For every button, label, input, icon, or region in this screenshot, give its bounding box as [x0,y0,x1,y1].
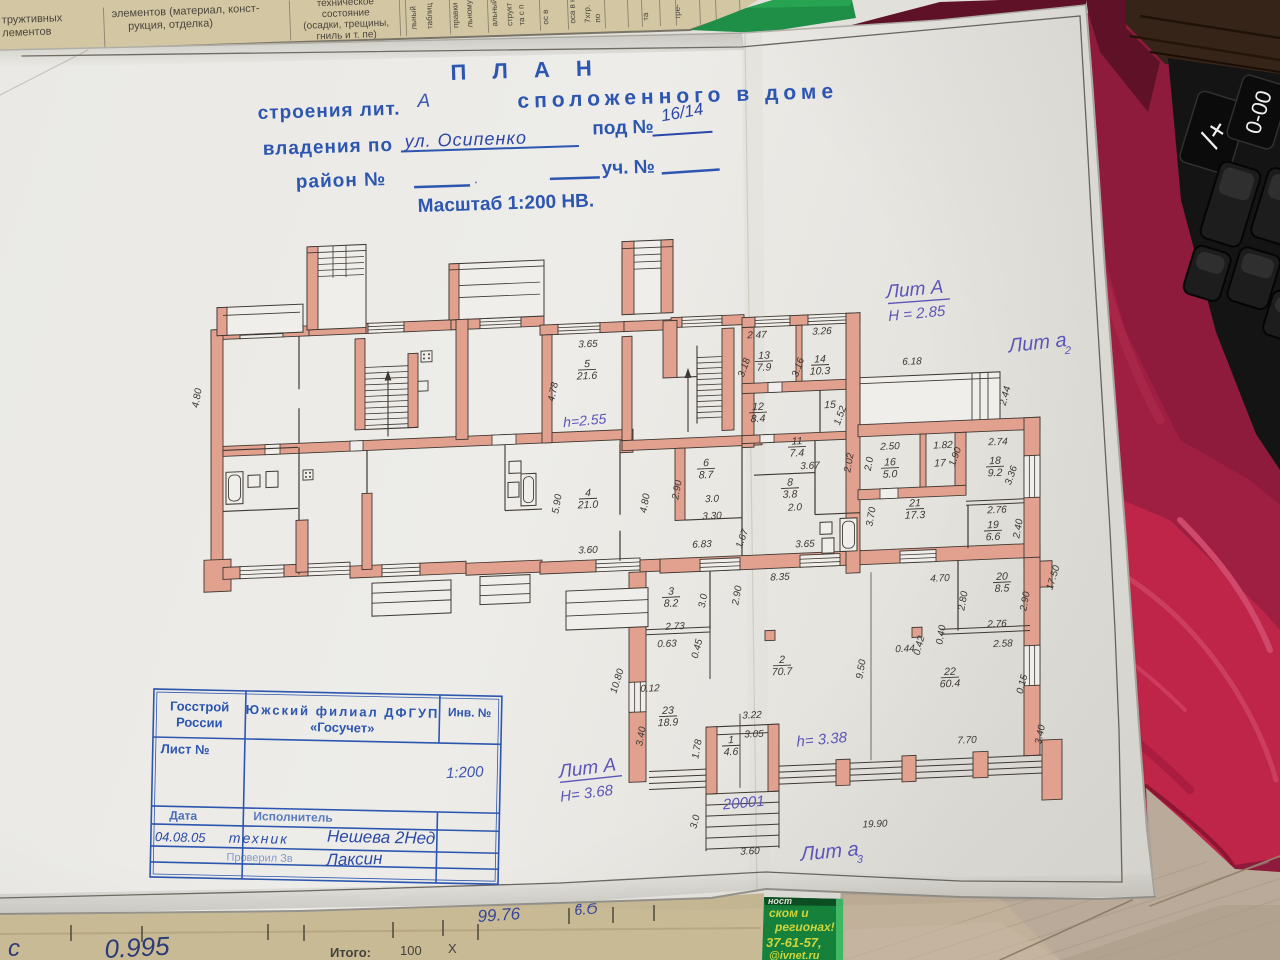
svg-text:12: 12 [752,401,764,413]
svg-text:18.9: 18.9 [658,716,679,729]
svg-text:район №: район № [296,169,387,193]
svg-text:под №: под № [592,117,654,140]
svg-text:А: А [416,91,430,112]
svg-text:льному: льному [464,0,474,28]
svg-text:1.82: 1.82 [933,440,953,452]
svg-text:13: 13 [758,349,770,361]
svg-text:21.6: 21.6 [576,370,598,383]
svg-text:2.76: 2.76 [986,619,1007,631]
svg-text:8.2: 8.2 [664,597,679,610]
svg-text:7хгр.: 7хгр. [583,5,593,23]
svg-text:21.0: 21.0 [577,499,599,512]
svg-text:14: 14 [814,353,826,365]
svg-text:2: 2 [1064,345,1071,357]
svg-text:альный: альный [489,0,499,27]
svg-text:Инв. №: Инв. № [448,705,492,720]
svg-text:X: X [448,941,457,956]
svg-text:2.58: 2.58 [992,638,1013,650]
svg-text:Дата: Дата [169,808,197,823]
svg-text:2.73: 2.73 [664,621,685,633]
svg-text:19.90: 19.90 [862,819,887,831]
svg-text:Лаксин: Лаксин [325,849,383,870]
svg-text:22: 22 [943,666,956,679]
svg-text:3.8: 3.8 [783,488,798,501]
svg-text:техник: техник [229,830,289,847]
svg-text:04.08.05: 04.08.05 [155,829,207,845]
svg-text:0.12: 0.12 [640,683,660,695]
svg-text:та с п: та с п [517,5,527,26]
svg-text:5.0: 5.0 [883,468,898,481]
svg-text:16: 16 [884,456,896,468]
svg-text:тружтивных: тружтивных [2,12,63,26]
svg-text:21: 21 [908,497,921,510]
svg-text:8.35: 8.35 [770,572,790,584]
svg-text:0.995: 0.995 [104,931,171,960]
svg-text:3.60: 3.60 [740,846,760,858]
svg-text:ос в: ос в [541,9,551,24]
svg-text:3.05: 3.05 [744,729,764,741]
svg-text:9.2: 9.2 [988,467,1003,480]
svg-text:4.70: 4.70 [930,573,950,585]
svg-text:6: 6 [703,457,709,469]
svg-text:7.9: 7.9 [757,361,772,374]
svg-text:100: 100 [400,943,422,958]
svg-text:1: 1 [728,734,734,746]
svg-text:3.65: 3.65 [795,539,815,551]
svg-text:8.7: 8.7 [699,469,715,482]
svg-text:2.76: 2.76 [986,505,1007,517]
svg-text:19: 19 [987,519,999,531]
svg-text:15: 15 [824,399,836,411]
svg-text:0.63: 0.63 [657,638,677,650]
svg-text:60.4: 60.4 [940,677,961,690]
svg-text:Итого:: Итого: [330,945,371,960]
svg-text:ском и: ском и [769,906,809,920]
svg-text:таблиц: таблиц [424,2,434,29]
svg-text:@ivnet.ru: @ivnet.ru [769,950,820,960]
svg-text:3.30: 3.30 [702,510,722,522]
svg-text:6.18: 6.18 [902,356,922,368]
svg-text:лементов: лементов [2,26,52,40]
svg-text:3.67: 3.67 [800,460,820,472]
svg-text:Госстрой: Госстрой [170,698,230,714]
svg-text:7.4: 7.4 [790,447,805,460]
svg-text:8.5: 8.5 [995,582,1010,595]
svg-text:8.4: 8.4 [751,413,766,426]
svg-text:10.3: 10.3 [810,365,831,378]
svg-text:Нешева 2Нед: Нешева 2Нед [327,827,436,848]
svg-text:правки: правки [450,2,460,28]
svg-text:тре-: тре- [673,4,683,20]
svg-text:3.65: 3.65 [578,339,598,351]
svg-text:владения по: владения по [263,135,394,160]
svg-text:2.47: 2.47 [746,330,767,342]
svg-text:18: 18 [989,455,1001,467]
svg-text:3.26: 3.26 [812,326,832,338]
svg-text:3: 3 [857,854,864,866]
svg-text:7.70: 7.70 [957,735,977,747]
svg-text:2.74: 2.74 [987,436,1008,448]
svg-text:6.83: 6.83 [692,539,712,551]
svg-text:структ: структ [504,2,514,26]
svg-text:Проверил Зв: Проверил Зв [226,852,293,865]
svg-text:37-61-57,: 37-61-57, [766,935,822,950]
svg-text:по: по [593,13,602,23]
svg-text:«Госучет»: «Госучет» [310,719,375,735]
svg-text:П Л А Н: П Л А Н [450,55,602,85]
svg-text:4.6: 4.6 [724,746,739,759]
svg-text:20: 20 [995,570,1008,583]
svg-text:8: 8 [787,477,793,489]
svg-text:23: 23 [661,705,674,718]
svg-text:1:200: 1:200 [446,763,485,782]
svg-text:регионах!: регионах! [774,920,835,934]
svg-text:2.0: 2.0 [787,502,802,514]
svg-text:17: 17 [934,457,947,470]
svg-text:11: 11 [792,435,803,447]
svg-text:17.3: 17.3 [905,509,926,522]
svg-text:строения лит.: строения лит. [257,99,400,124]
svg-text:уч. №: уч. № [601,157,655,180]
svg-text:2: 2 [778,654,785,666]
svg-text:3: 3 [668,586,674,598]
svg-text:Исполнитель: Исполнитель [253,809,333,825]
svg-text:70.7: 70.7 [772,666,794,679]
svg-text:3.0: 3.0 [705,494,719,506]
svg-text:2.50: 2.50 [879,441,900,453]
svg-text:.: . [474,170,478,186]
svg-text:3.22: 3.22 [742,710,762,722]
svg-text:с: с [8,935,20,960]
svg-text:России: России [176,714,223,730]
svg-text:6.6: 6.6 [986,531,1001,544]
svg-text:льный: льный [409,6,419,30]
svg-text:5: 5 [584,358,590,370]
svg-text:4: 4 [585,487,591,499]
svg-text:Лист №: Лист № [161,741,210,757]
svg-text:3.60: 3.60 [578,545,598,557]
